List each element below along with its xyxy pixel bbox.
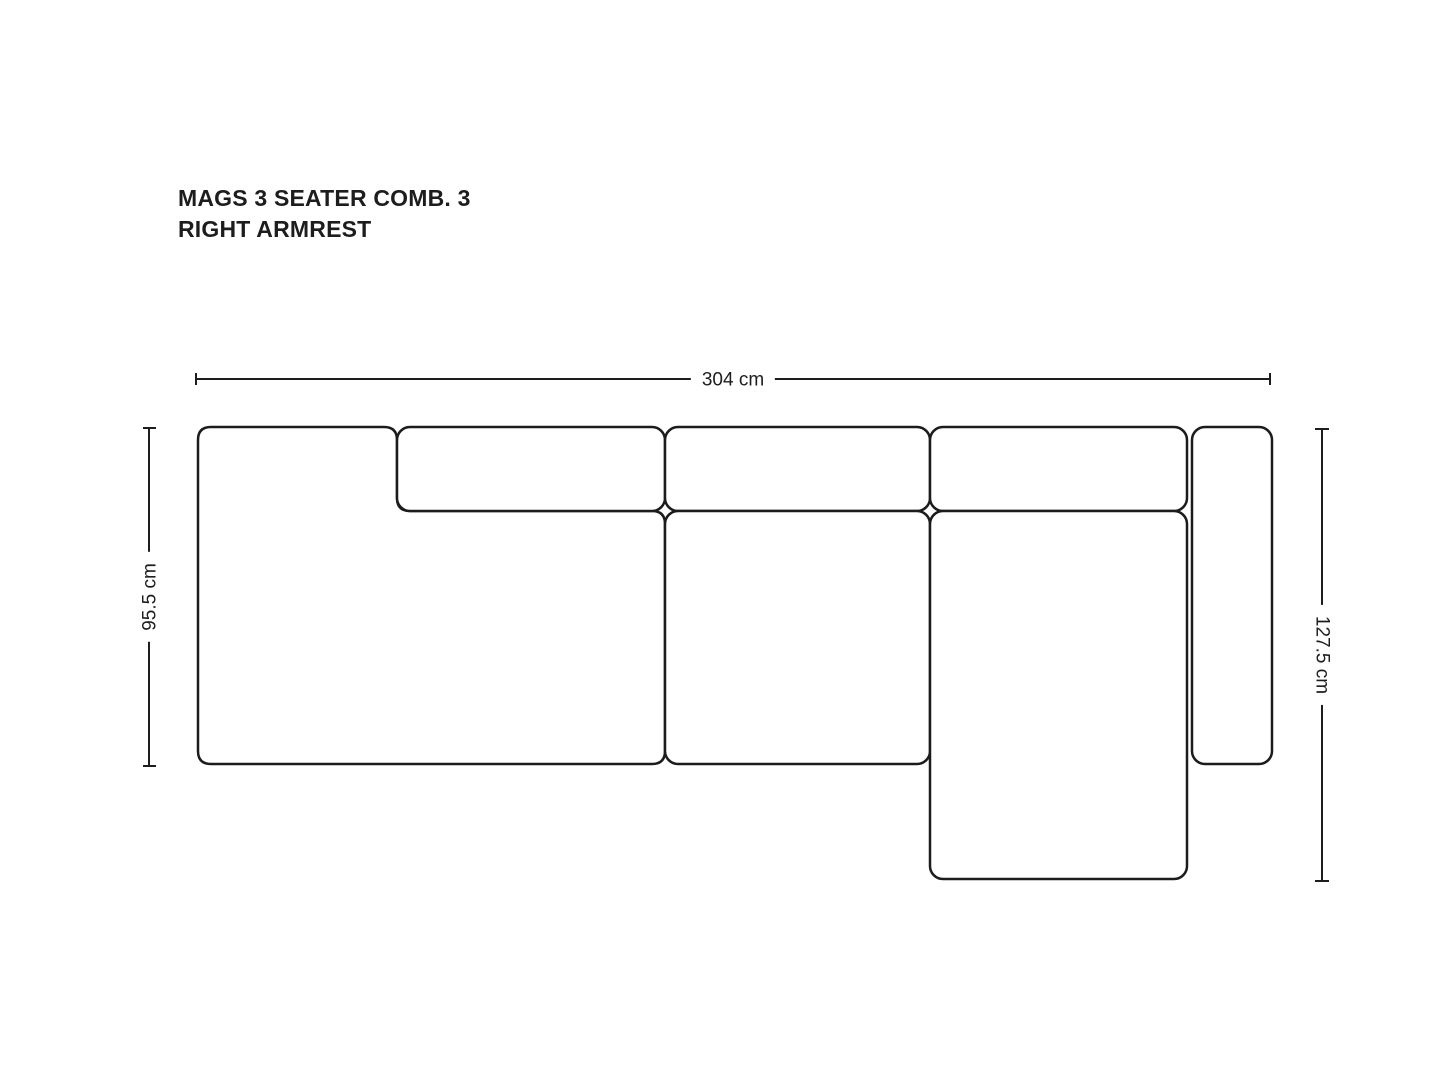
total-width-dimension-label: 304 cm <box>691 366 775 395</box>
backrest-cushion-3-outline <box>930 427 1187 511</box>
left-depth-dimension-label: 95.5 cm <box>136 552 165 642</box>
sofa-dimension-diagram: MAGS 3 SEATER COMB. 3 RIGHT ARMREST 304 <box>0 0 1445 1087</box>
right-armrest-outline <box>1192 427 1272 764</box>
right-depth-dimension-label: 127.5 cm <box>1308 605 1337 705</box>
backrest-cushion-2-outline <box>665 427 930 511</box>
sofa-top-view-drawing <box>0 0 1445 1087</box>
middle-seat-module-outline <box>665 511 930 764</box>
backrest-cushion-1-outline <box>397 427 665 511</box>
chaise-longue-module-outline <box>930 511 1187 879</box>
